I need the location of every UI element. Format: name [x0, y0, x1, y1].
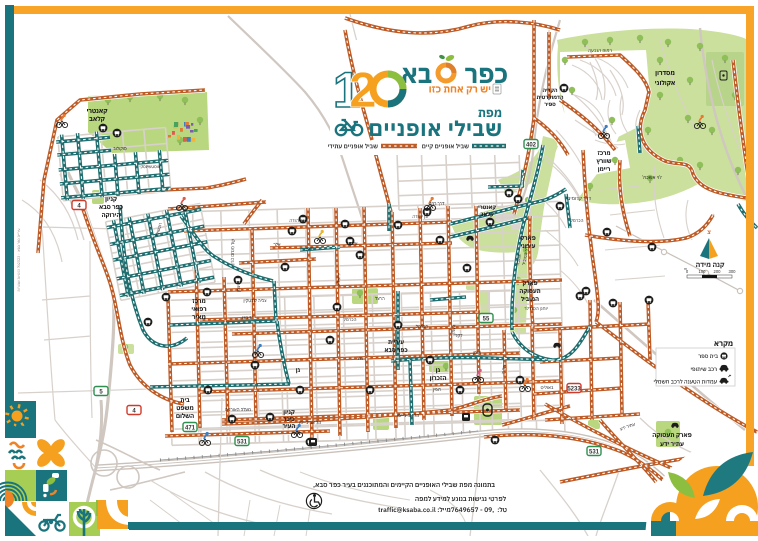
svg-text:m: m — [684, 267, 687, 271]
svg-text:471: 471 — [185, 425, 196, 431]
svg-text:100: 100 — [699, 269, 707, 274]
svg-text:200: 200 — [714, 269, 722, 274]
svg-text:402: 402 — [526, 142, 537, 148]
svg-text:531: 531 — [237, 439, 248, 445]
svg-text:531: 531 — [589, 449, 600, 455]
svg-text:5233: 5233 — [567, 386, 581, 392]
svg-text:300: 300 — [729, 269, 737, 274]
svg-text:55: 55 — [483, 316, 490, 322]
